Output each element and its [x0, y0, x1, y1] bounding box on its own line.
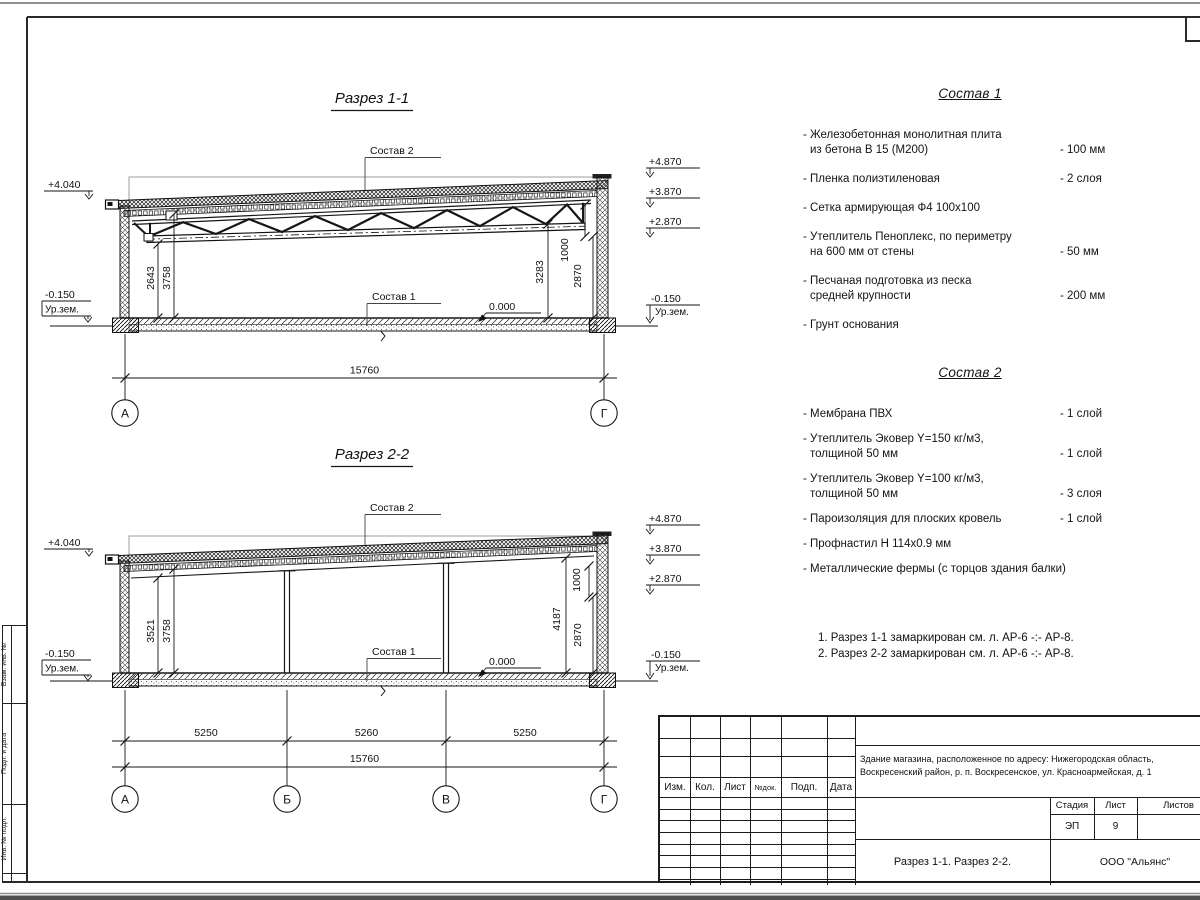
doc-title: Разрез 1-1. Разрез 2-2.	[855, 839, 1050, 885]
col-list: Лист	[720, 778, 750, 797]
note-2: 2. Разрез 2-2 замаркирован см. л. АР-6 -…	[818, 647, 1154, 663]
svg-text:3283: 3283	[534, 260, 546, 284]
svg-text:+3.870: +3.870	[649, 543, 682, 555]
svg-text:2870: 2870	[572, 264, 584, 288]
svg-text:1000: 1000	[571, 568, 583, 592]
section-1-1: Разрез 1-1	[42, 90, 700, 426]
axis-a: А	[121, 793, 129, 807]
svg-text:0.000: 0.000	[489, 301, 515, 313]
svg-text:-0.150: -0.150	[45, 648, 75, 660]
svg-text:15760: 15760	[350, 753, 379, 765]
list-item: - Мембрана ПВХ - 1 слой	[803, 407, 1137, 422]
sostav-2-title: Состав 2	[803, 365, 1137, 380]
list-item: - Железобетонная монолитная плита из бет…	[803, 128, 1137, 158]
axis-g: Г	[601, 407, 608, 421]
leader-sostav1: Состав 1	[372, 291, 416, 303]
svg-text:15760: 15760	[350, 365, 379, 377]
col-izm: Изм.	[660, 778, 690, 797]
notes: 1. Разрез 1-1 замаркирован см. л. АР-6 -…	[818, 631, 1154, 662]
stamp-label: Инв. № подл.	[0, 804, 9, 873]
roof-slab	[106, 532, 612, 572]
list-item: - Песчаная подготовка из песка средней к…	[803, 274, 1137, 304]
dimensions: 3521 3758 4187 1000 2870 5250 5260 5250 …	[112, 554, 617, 786]
list-item: - Пароизоляция для плоских кровель - 1 с…	[803, 512, 1137, 527]
drawing-sheet: { "sec1": { "title": "Разрез 1-1", "lead…	[0, 0, 1200, 900]
column-b	[279, 571, 296, 673]
column-v	[438, 563, 455, 673]
axis-b: Б	[283, 793, 291, 807]
stamp-label: Подп. и дата	[0, 703, 9, 804]
svg-text:+3.870: +3.870	[649, 186, 682, 198]
svg-text:-0.150: -0.150	[651, 649, 681, 661]
svg-text:+4.870: +4.870	[649, 513, 682, 525]
sostav-1-title: Состав 1	[803, 86, 1137, 101]
svg-text:5250: 5250	[513, 727, 537, 739]
svg-text:Ур.зем.: Ур.зем.	[655, 663, 689, 674]
list-item: - Профнастил Н 114х0.9 мм	[803, 537, 1137, 552]
section-title: Разрез 2-2	[335, 446, 410, 463]
leader-sostav1: Состав 1	[372, 646, 416, 658]
svg-text:Ур.зем.: Ур.зем.	[45, 305, 79, 316]
svg-text:+2.870: +2.870	[649, 216, 682, 228]
stage-label: Стадия	[1050, 797, 1094, 814]
footing-left	[113, 318, 139, 333]
col-podp: Подп.	[781, 778, 827, 797]
floor-slab	[50, 318, 658, 341]
svg-text:+2.870: +2.870	[649, 573, 682, 585]
break-mark	[381, 332, 385, 342]
svg-text:3758: 3758	[161, 266, 173, 290]
section-title: Разрез 1-1	[335, 90, 409, 107]
svg-text:3758: 3758	[161, 619, 173, 643]
list-item: - Утеплитель Эковер Y=100 кг/м3, толщино…	[803, 472, 1137, 502]
axis-bubbles: А Г	[112, 400, 617, 426]
sostav-2-list: Состав 2 - Мембрана ПВХ - 1 слой - Утепл…	[803, 365, 1137, 587]
left-frame-stamp: Взам. инв. № Подп. и дата Инв. № подл.	[2, 625, 26, 883]
axis-g: Г	[601, 793, 608, 807]
sheets-label: Листов	[1137, 797, 1200, 814]
section-2-2: Разрез 2-2	[42, 446, 700, 812]
svg-text:-0.150: -0.150	[45, 289, 75, 301]
title-block: Изм. Кол. Лист №док. Подп. Дата Здание м…	[658, 715, 1200, 883]
leader-sostav2: Состав 2	[370, 502, 414, 514]
col-ndok: №док.	[750, 778, 781, 797]
svg-text:2870: 2870	[572, 623, 584, 647]
col-kol: Кол.	[690, 778, 720, 797]
list-item: - Пленка полиэтиленовая - 2 слоя	[803, 172, 1137, 187]
footing-right	[590, 318, 616, 333]
list-item: - Грунт основания	[803, 318, 1137, 333]
corner-stamp-box	[1186, 17, 1200, 41]
stage-value: ЭП	[1050, 814, 1094, 839]
svg-text:5260: 5260	[355, 727, 379, 739]
break-mark	[381, 687, 385, 697]
svg-text:3521: 3521	[145, 619, 157, 643]
list-item: - Утеплитель Пеноплекс, по периметру на …	[803, 230, 1137, 260]
footing-left	[113, 673, 139, 688]
col-data: Дата	[827, 778, 855, 797]
svg-text:+4.040: +4.040	[48, 537, 81, 549]
sheet-label: Лист	[1094, 797, 1137, 814]
sheet-number: 9	[1094, 814, 1137, 839]
list-item: - Сетка армирующая Ф4 100х100	[803, 201, 1137, 216]
note-1: 1. Разрез 1-1 замаркирован см. л. АР-6 -…	[818, 631, 1154, 647]
svg-text:-0.150: -0.150	[651, 293, 681, 305]
sostav-1-list: Состав 1 - Железобетонная монолитная пли…	[803, 86, 1137, 347]
svg-text:1000: 1000	[559, 238, 571, 262]
svg-text:+4.040: +4.040	[48, 179, 81, 191]
svg-text:Ур.зем.: Ур.зем.	[655, 307, 689, 318]
footing-right	[590, 673, 616, 688]
leaders: Состав 2 Состав 1	[365, 502, 441, 681]
svg-text:5250: 5250	[194, 727, 218, 739]
axis-v: В	[442, 793, 450, 807]
svg-text:+4.870: +4.870	[649, 156, 682, 168]
list-item: - Металлические фермы (с торцов здания б…	[803, 562, 1137, 577]
svg-text:2643: 2643	[145, 266, 157, 290]
project-description: Здание магазина, расположенное по адресу…	[860, 753, 1200, 778]
svg-text:0.000: 0.000	[489, 656, 515, 668]
leader-sostav2: Состав 2	[370, 145, 414, 157]
floor-slab	[50, 673, 658, 696]
list-item: - Утеплитель Эковер Y=150 кг/м3, толщино…	[803, 432, 1137, 462]
stamp-label: Взам. инв. №	[0, 626, 9, 703]
axis-bubbles: А Б В Г	[112, 786, 617, 812]
svg-text:4187: 4187	[551, 607, 563, 631]
ceiling-and-columns	[131, 556, 594, 673]
company-name: ООО "Альянс"	[1050, 839, 1200, 885]
axis-a: А	[121, 407, 129, 421]
svg-text:Ур.зем.: Ур.зем.	[45, 664, 79, 675]
